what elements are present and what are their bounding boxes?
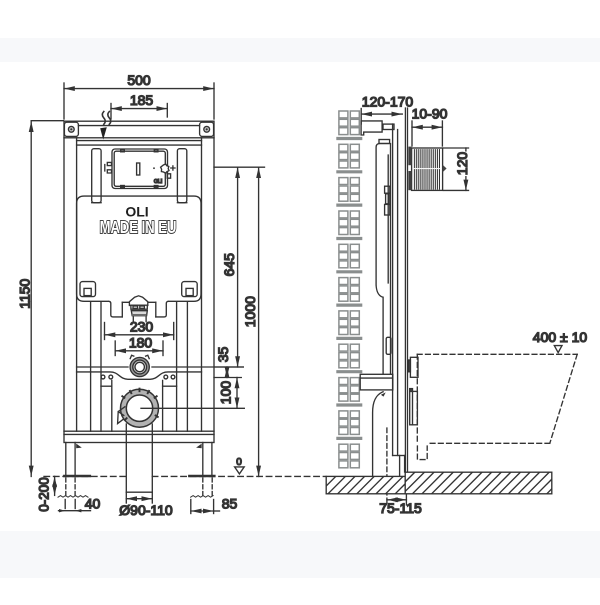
svg-text:120-170: 120-170 (362, 94, 414, 110)
svg-text:40: 40 (85, 495, 101, 511)
svg-text:180: 180 (129, 335, 153, 351)
svg-text:230: 230 (130, 319, 154, 335)
svg-text:0-200: 0-200 (37, 477, 52, 512)
svg-text:500: 500 (127, 72, 151, 88)
svg-text:10-90: 10-90 (412, 106, 448, 122)
svg-text:OLI: OLI (125, 203, 148, 219)
svg-text:MADE IN EU: MADE IN EU (100, 218, 177, 237)
svg-text:185: 185 (130, 92, 154, 108)
svg-text:85: 85 (222, 495, 238, 511)
svg-text:1000: 1000 (242, 296, 258, 327)
svg-text:120: 120 (454, 152, 470, 176)
svg-text:35: 35 (215, 347, 231, 363)
svg-text:1150: 1150 (17, 278, 33, 308)
svg-text:75-115: 75-115 (379, 500, 422, 516)
svg-text:100: 100 (218, 381, 234, 405)
svg-text:400 ± 10: 400 ± 10 (533, 329, 588, 345)
svg-text:Ø90-110: Ø90-110 (119, 502, 173, 518)
svg-text:645: 645 (221, 253, 237, 277)
svg-text:OLI: OLI (154, 179, 163, 185)
